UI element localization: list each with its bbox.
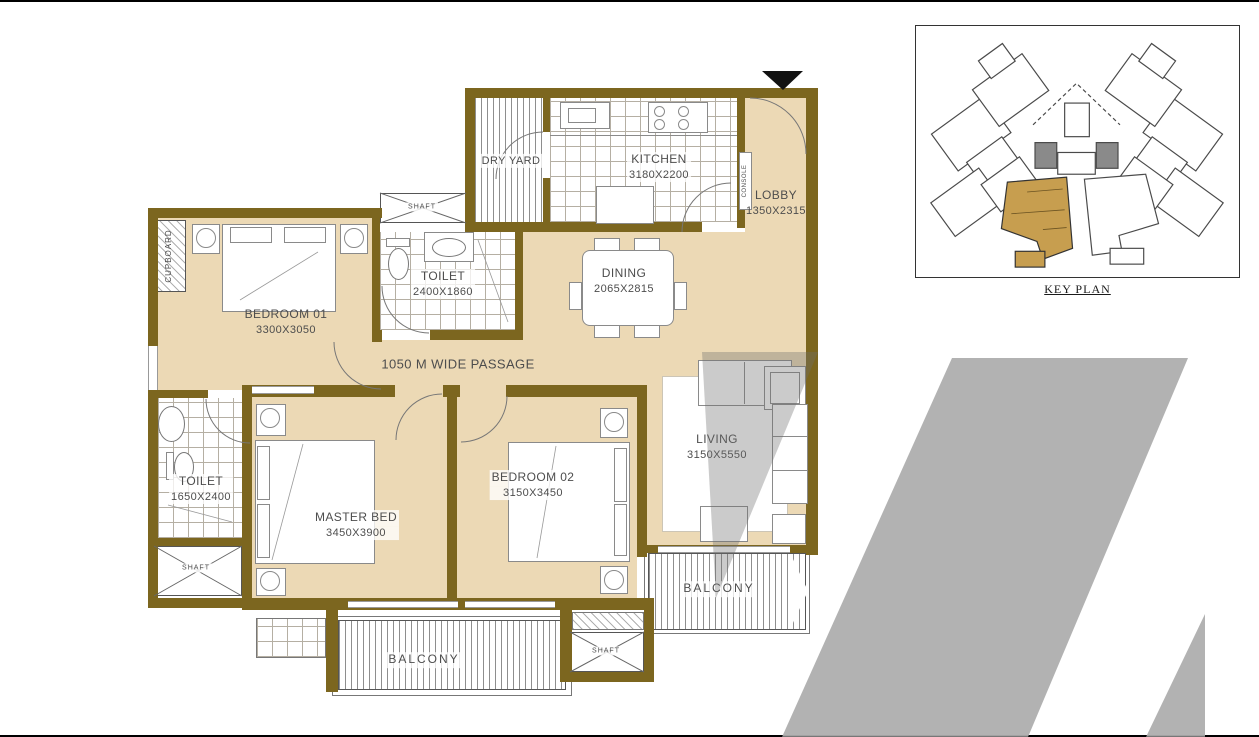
window	[465, 601, 555, 608]
washbasin	[158, 406, 185, 442]
sink-basin	[568, 108, 596, 123]
tv-cabinet	[772, 404, 808, 504]
cistern	[386, 238, 410, 247]
wall-segment	[637, 390, 647, 557]
wall-segment	[148, 598, 252, 608]
burner	[654, 119, 665, 130]
washbasin	[432, 238, 466, 257]
window	[658, 546, 790, 553]
wall-segment	[515, 222, 523, 338]
shaft-left-label: SHAFT	[180, 563, 212, 572]
cupboard-label: CUPBOARD	[164, 229, 174, 282]
chair	[594, 238, 620, 251]
living-label: LIVING3150X5550	[687, 432, 747, 462]
lamp	[260, 571, 280, 591]
console-label: CONSOLE	[742, 165, 750, 198]
burner	[678, 119, 689, 130]
wall-segment	[560, 672, 654, 682]
passage-label: 1050 M WIDE PASSAGE	[381, 357, 534, 374]
key-plan-drawing	[916, 26, 1238, 276]
chair	[569, 282, 582, 310]
grill-panel	[256, 618, 326, 658]
sofa-divider	[744, 362, 745, 404]
balcony-spout-icon	[792, 557, 808, 625]
wall-segment	[447, 390, 457, 602]
burner	[678, 106, 689, 117]
keyplan-unit-right	[1084, 174, 1158, 255]
lamp	[344, 228, 364, 248]
wall-segment	[644, 610, 654, 672]
entrance-arrow-icon	[762, 71, 803, 90]
cabinet-shelf	[772, 470, 808, 471]
key-plan-caption: KEY PLAN	[915, 282, 1240, 297]
lamp	[604, 412, 624, 432]
lamp	[196, 228, 216, 248]
wall-segment	[430, 330, 523, 340]
lamp	[260, 408, 280, 428]
bedroom02-label: BEDROOM 023150X3450	[490, 470, 577, 500]
side-table-top	[770, 372, 800, 404]
bed	[255, 440, 375, 564]
wall-segment	[242, 390, 252, 546]
pillow	[257, 504, 270, 558]
shaft-top-label: SHAFT	[406, 202, 438, 211]
dining-label: DINING2065X2815	[594, 266, 654, 296]
coffee-table	[700, 506, 748, 542]
wall-segment	[372, 215, 380, 340]
kitchen-label: KITCHEN3180X2200	[627, 152, 691, 182]
kitchen-island	[596, 186, 654, 224]
toilet-common-label: TOILET2400X1860	[411, 269, 475, 299]
chair	[634, 238, 660, 251]
burner	[654, 106, 665, 117]
window	[348, 601, 458, 608]
wall-segment	[465, 222, 702, 232]
chair	[674, 282, 687, 310]
balcony-living-label: BALCONY	[681, 581, 756, 597]
wall-segment	[148, 538, 252, 546]
wall-segment	[506, 385, 647, 397]
chair	[634, 325, 660, 338]
window	[252, 386, 314, 394]
chair	[594, 325, 620, 338]
wall-segment	[148, 208, 158, 608]
side-unit	[772, 514, 806, 544]
pillow	[230, 227, 272, 243]
pillow	[614, 504, 627, 556]
key-plan-box	[915, 25, 1240, 278]
sheet-border-top	[0, 0, 1259, 2]
lobby-label: LOBBY1350X2315	[746, 188, 806, 218]
cabinet-shelf	[772, 436, 808, 437]
shaft-bottom-label: SHAFT	[590, 646, 622, 655]
bedroom01-label: BEDROOM 013300X3050	[245, 307, 328, 337]
floor-plan-sheet: DRY YARD KITCHEN3180X2200 LOBBY1350X2315…	[0, 0, 1259, 737]
lamp	[604, 570, 624, 590]
wall-segment	[543, 178, 550, 232]
wall-segment	[326, 610, 338, 692]
wall-segment	[465, 88, 475, 232]
wall-segment	[372, 330, 382, 342]
toilet-master-label: TOILET1650X2400	[169, 474, 233, 504]
pillow	[284, 227, 326, 243]
pillow	[614, 448, 627, 502]
pillow	[257, 446, 270, 500]
window	[148, 346, 158, 390]
kitchen-counter-edge	[550, 135, 737, 136]
wall-segment	[543, 98, 550, 132]
wall-segment	[148, 390, 208, 398]
grill-panel	[572, 612, 644, 630]
dry-yard-label: DRY YARD	[480, 154, 543, 168]
bed	[508, 442, 630, 562]
wall-segment	[148, 208, 382, 218]
balcony-master-label: BALCONY	[386, 652, 461, 668]
master-bed-label: MASTER BED3450X3900	[313, 510, 399, 540]
wc	[388, 248, 409, 280]
